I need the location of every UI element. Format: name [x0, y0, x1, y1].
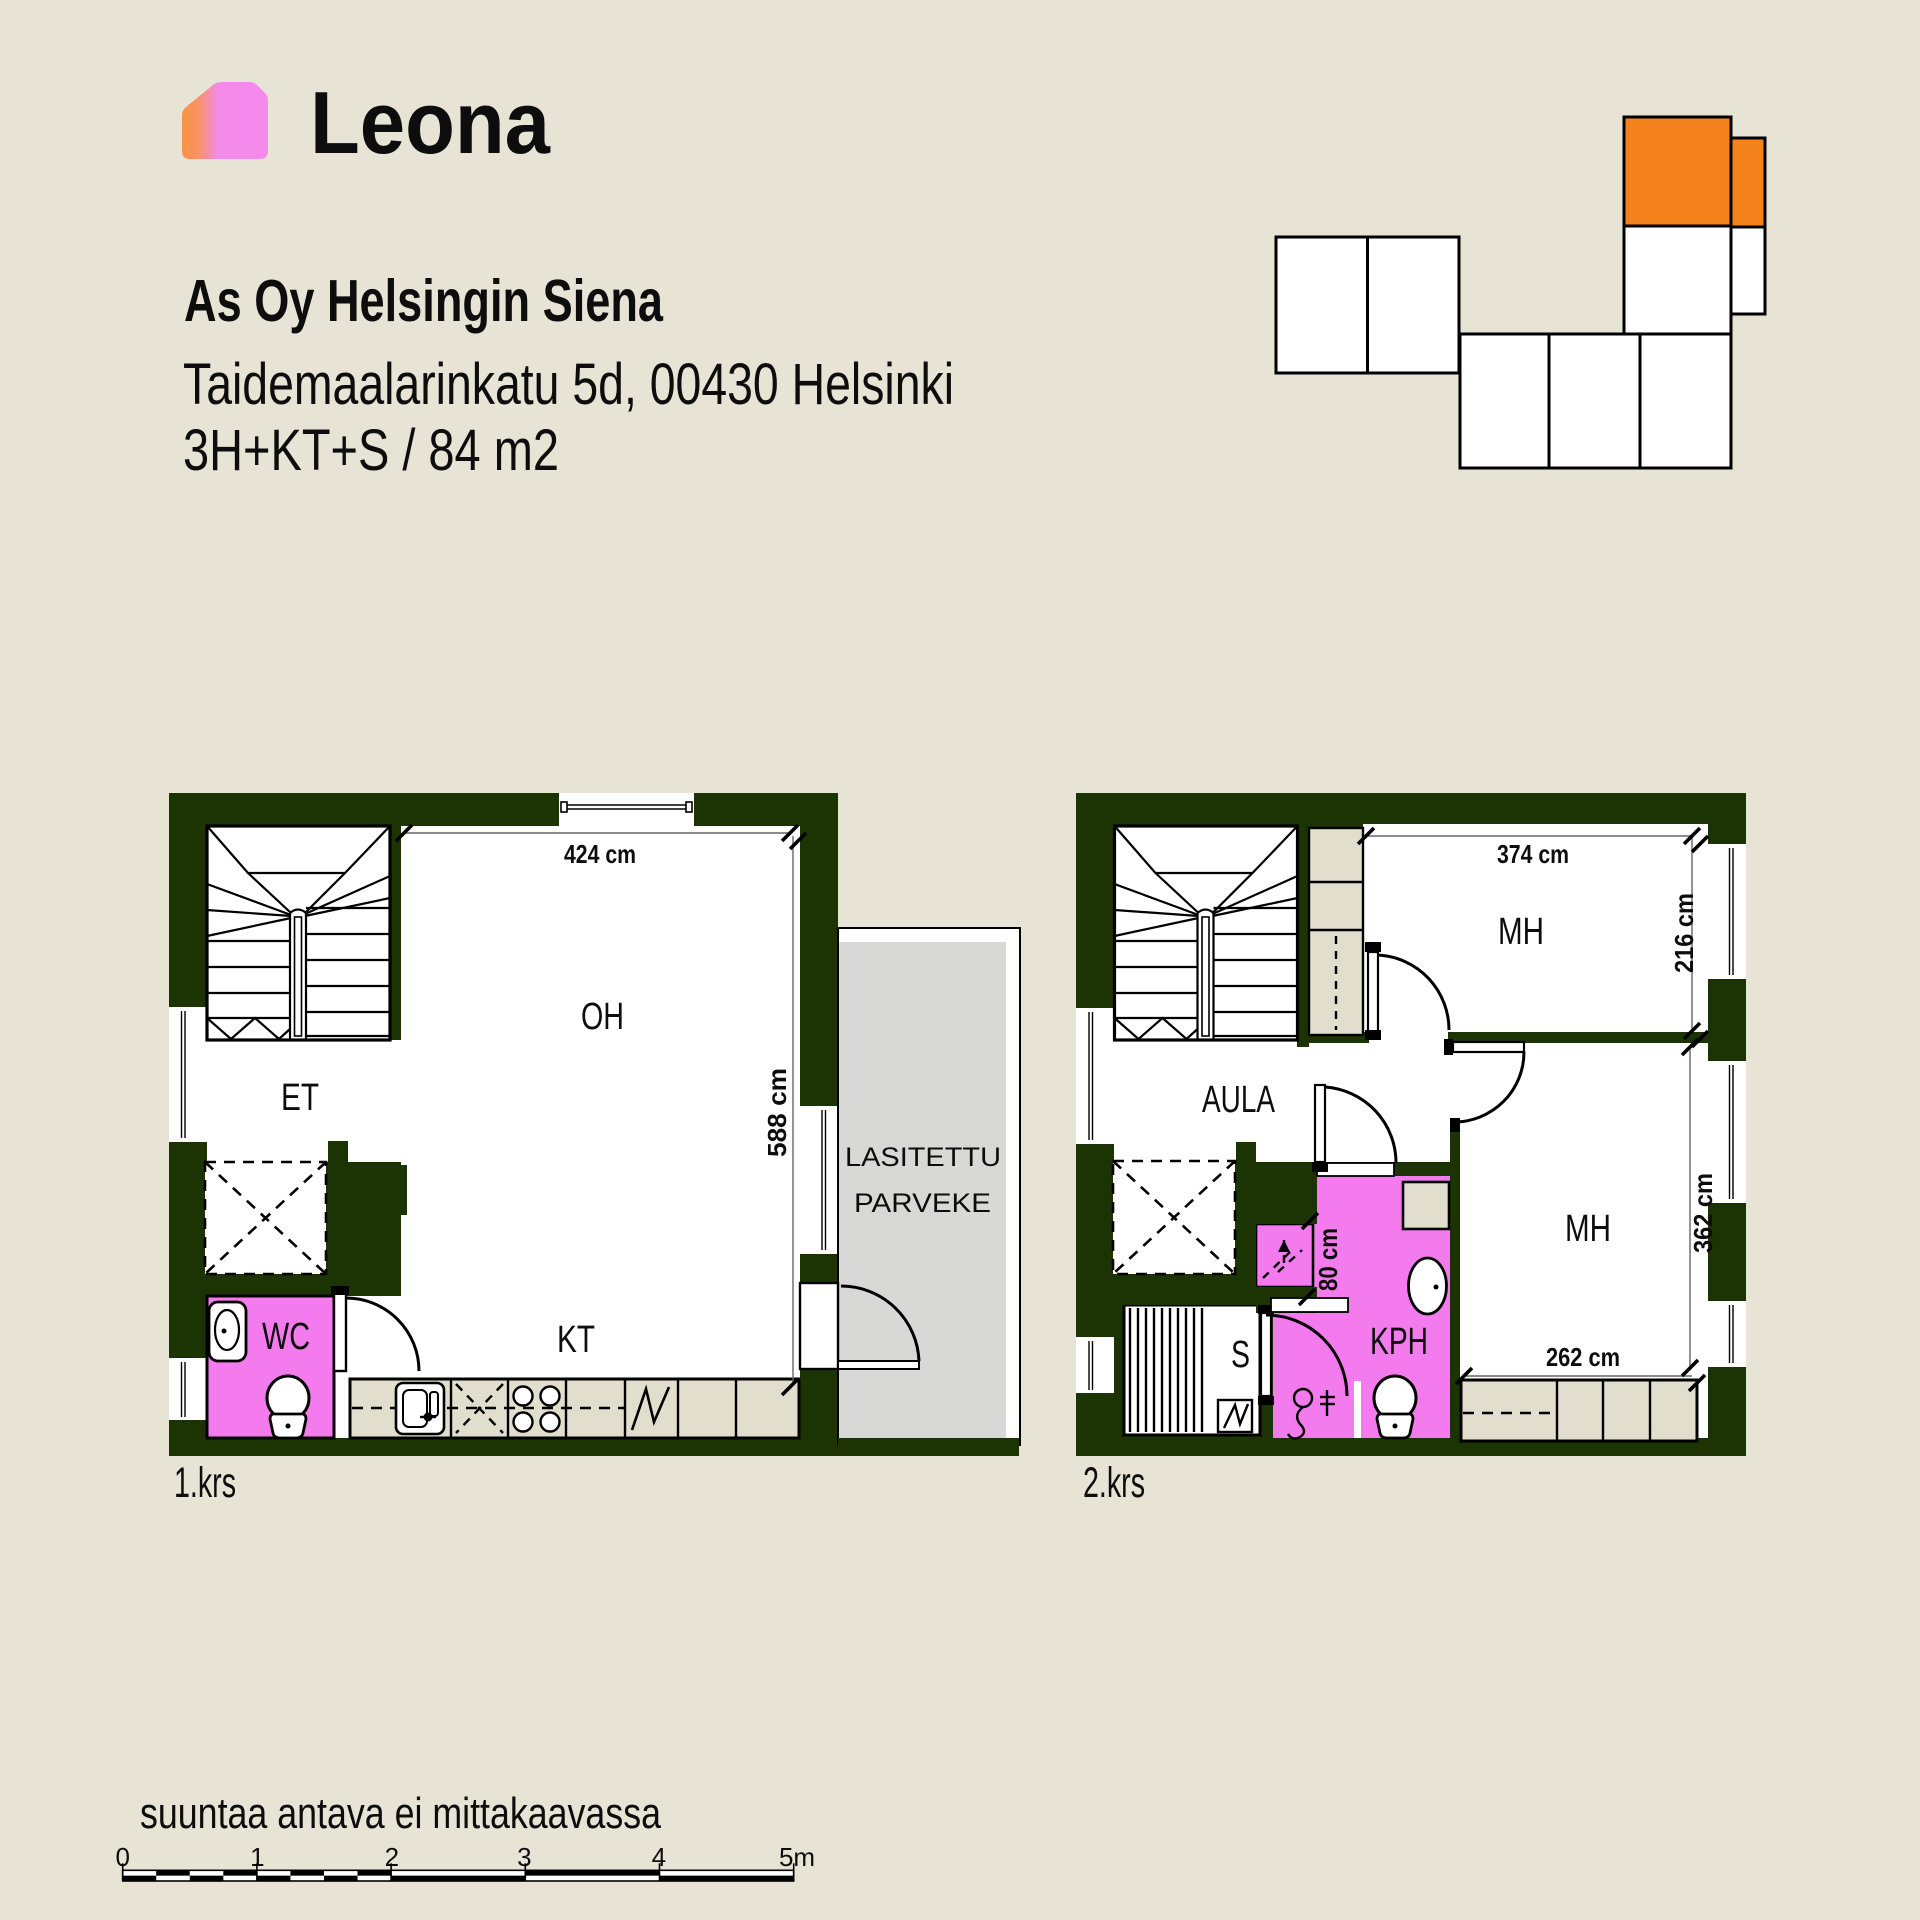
svg-text:As Oy Helsingin Siena: As Oy Helsingin Siena: [184, 268, 664, 334]
svg-text:2.krs: 2.krs: [1083, 1459, 1145, 1507]
svg-text:KPH: KPH: [1370, 1321, 1428, 1363]
svg-text:AULA: AULA: [1202, 1079, 1275, 1121]
svg-text:Taidemaalarinkatu 5d, 00430 He: Taidemaalarinkatu 5d, 00430 Helsinki: [183, 352, 954, 417]
svg-text:WC: WC: [262, 1316, 310, 1358]
svg-text:OH: OH: [581, 996, 624, 1038]
svg-text:KT: KT: [557, 1319, 595, 1361]
svg-text:3: 3: [517, 1842, 531, 1872]
svg-text:588 cm: 588 cm: [762, 1068, 792, 1157]
svg-text:Leona: Leona: [310, 73, 551, 172]
svg-text:suuntaa antava ei mittakaavass: suuntaa antava ei mittakaavassa: [140, 1789, 661, 1838]
svg-text:424 cm: 424 cm: [564, 839, 636, 869]
svg-text:MH: MH: [1565, 1208, 1611, 1250]
svg-text:LASITETTU: LASITETTU: [845, 1142, 1001, 1172]
svg-text:3H+KT+S / 84 m2: 3H+KT+S / 84 m2: [183, 418, 559, 483]
svg-text:S: S: [1231, 1334, 1250, 1376]
svg-text:1.krs: 1.krs: [174, 1459, 236, 1507]
svg-text:5m: 5m: [779, 1842, 815, 1872]
svg-text:MH: MH: [1498, 911, 1544, 953]
svg-text:374 cm: 374 cm: [1497, 839, 1569, 869]
svg-text:ET: ET: [281, 1077, 319, 1119]
svg-text:PARVEKE: PARVEKE: [854, 1188, 991, 1218]
svg-text:216 cm: 216 cm: [1669, 893, 1699, 973]
svg-text:362 cm: 362 cm: [1688, 1173, 1718, 1253]
svg-text:80 cm: 80 cm: [1313, 1228, 1343, 1291]
svg-text:262 cm: 262 cm: [1546, 1342, 1620, 1372]
